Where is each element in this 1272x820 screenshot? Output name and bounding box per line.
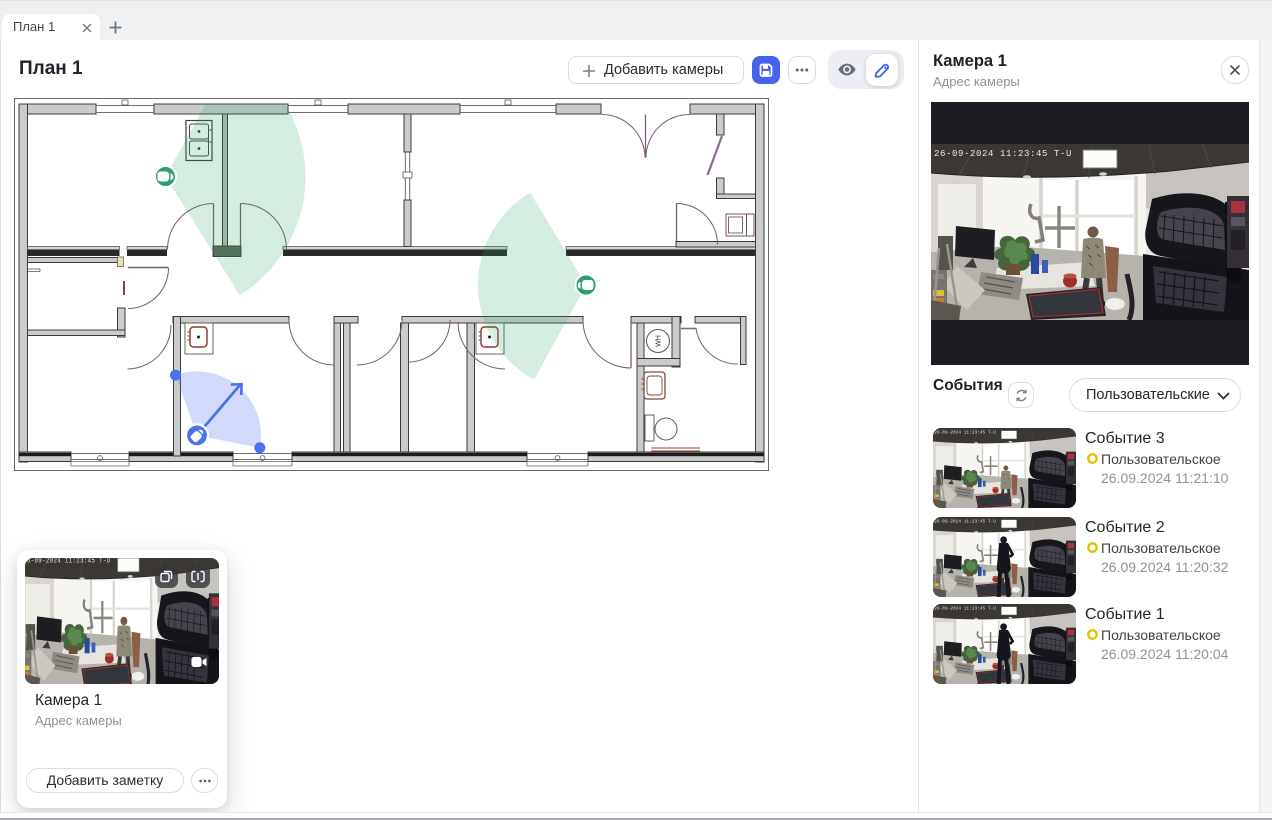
svg-text:WH: WH [656,335,663,347]
